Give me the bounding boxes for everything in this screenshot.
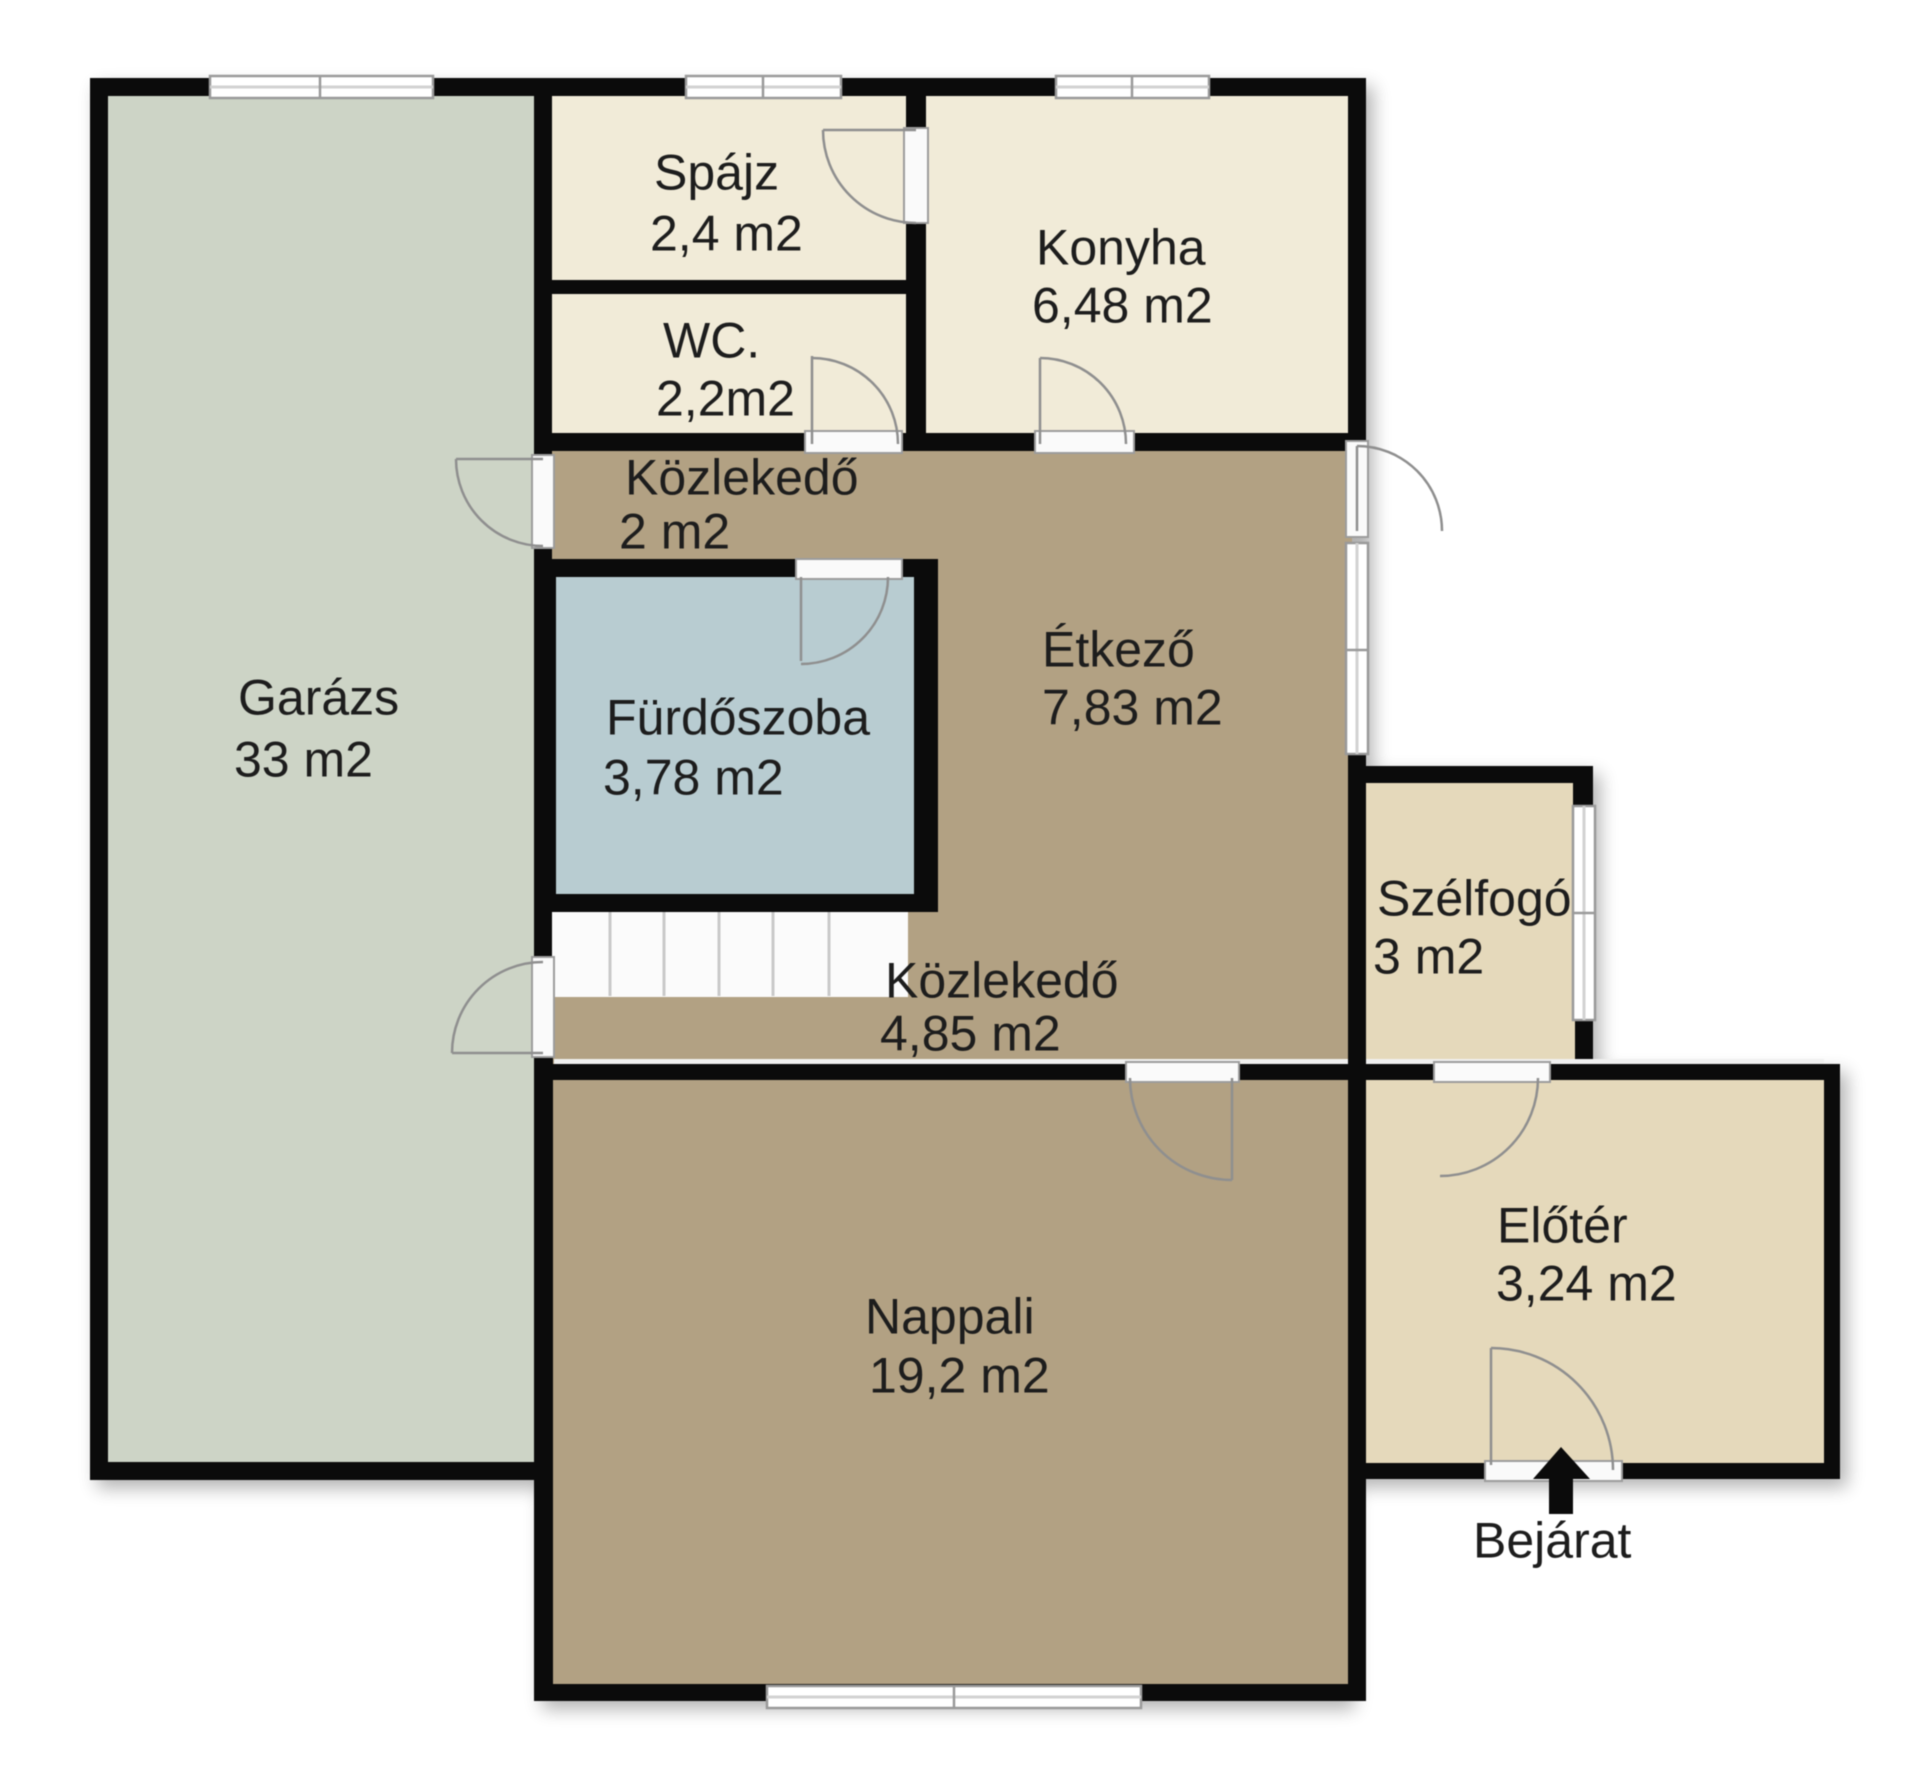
svg-text:Fürdőszoba: Fürdőszoba xyxy=(606,690,870,746)
svg-text:3,24 m2: 3,24 m2 xyxy=(1496,1256,1677,1312)
svg-text:WC.: WC. xyxy=(663,313,760,369)
svg-text:Bejárat: Bejárat xyxy=(1473,1513,1632,1569)
svg-text:Spájz: Spájz xyxy=(654,145,779,201)
svg-text:Étkező: Étkező xyxy=(1042,622,1195,678)
svg-text:33 m2: 33 m2 xyxy=(234,732,373,788)
svg-text:2,2m2: 2,2m2 xyxy=(656,371,795,427)
svg-text:Garázs: Garázs xyxy=(238,670,399,726)
svg-text:4,85 m2: 4,85 m2 xyxy=(880,1006,1061,1062)
svg-text:19,2 m2: 19,2 m2 xyxy=(869,1348,1050,1404)
svg-text:2 m2: 2 m2 xyxy=(619,504,730,560)
svg-text:2,4 m2: 2,4 m2 xyxy=(650,206,803,262)
svg-text:7,83 m2: 7,83 m2 xyxy=(1042,680,1223,736)
svg-text:6,48 m2: 6,48 m2 xyxy=(1032,278,1213,334)
svg-text:3,78 m2: 3,78 m2 xyxy=(603,750,784,806)
svg-text:Előtér: Előtér xyxy=(1497,1198,1628,1254)
svg-text:Közlekedő: Közlekedő xyxy=(625,450,859,506)
svg-text:Közlekedő: Közlekedő xyxy=(885,953,1119,1009)
svg-text:Konyha: Konyha xyxy=(1036,220,1206,276)
svg-text:Szélfogó: Szélfogó xyxy=(1377,871,1572,927)
svg-text:Nappali: Nappali xyxy=(865,1289,1035,1345)
svg-text:3 m2: 3 m2 xyxy=(1373,929,1484,985)
